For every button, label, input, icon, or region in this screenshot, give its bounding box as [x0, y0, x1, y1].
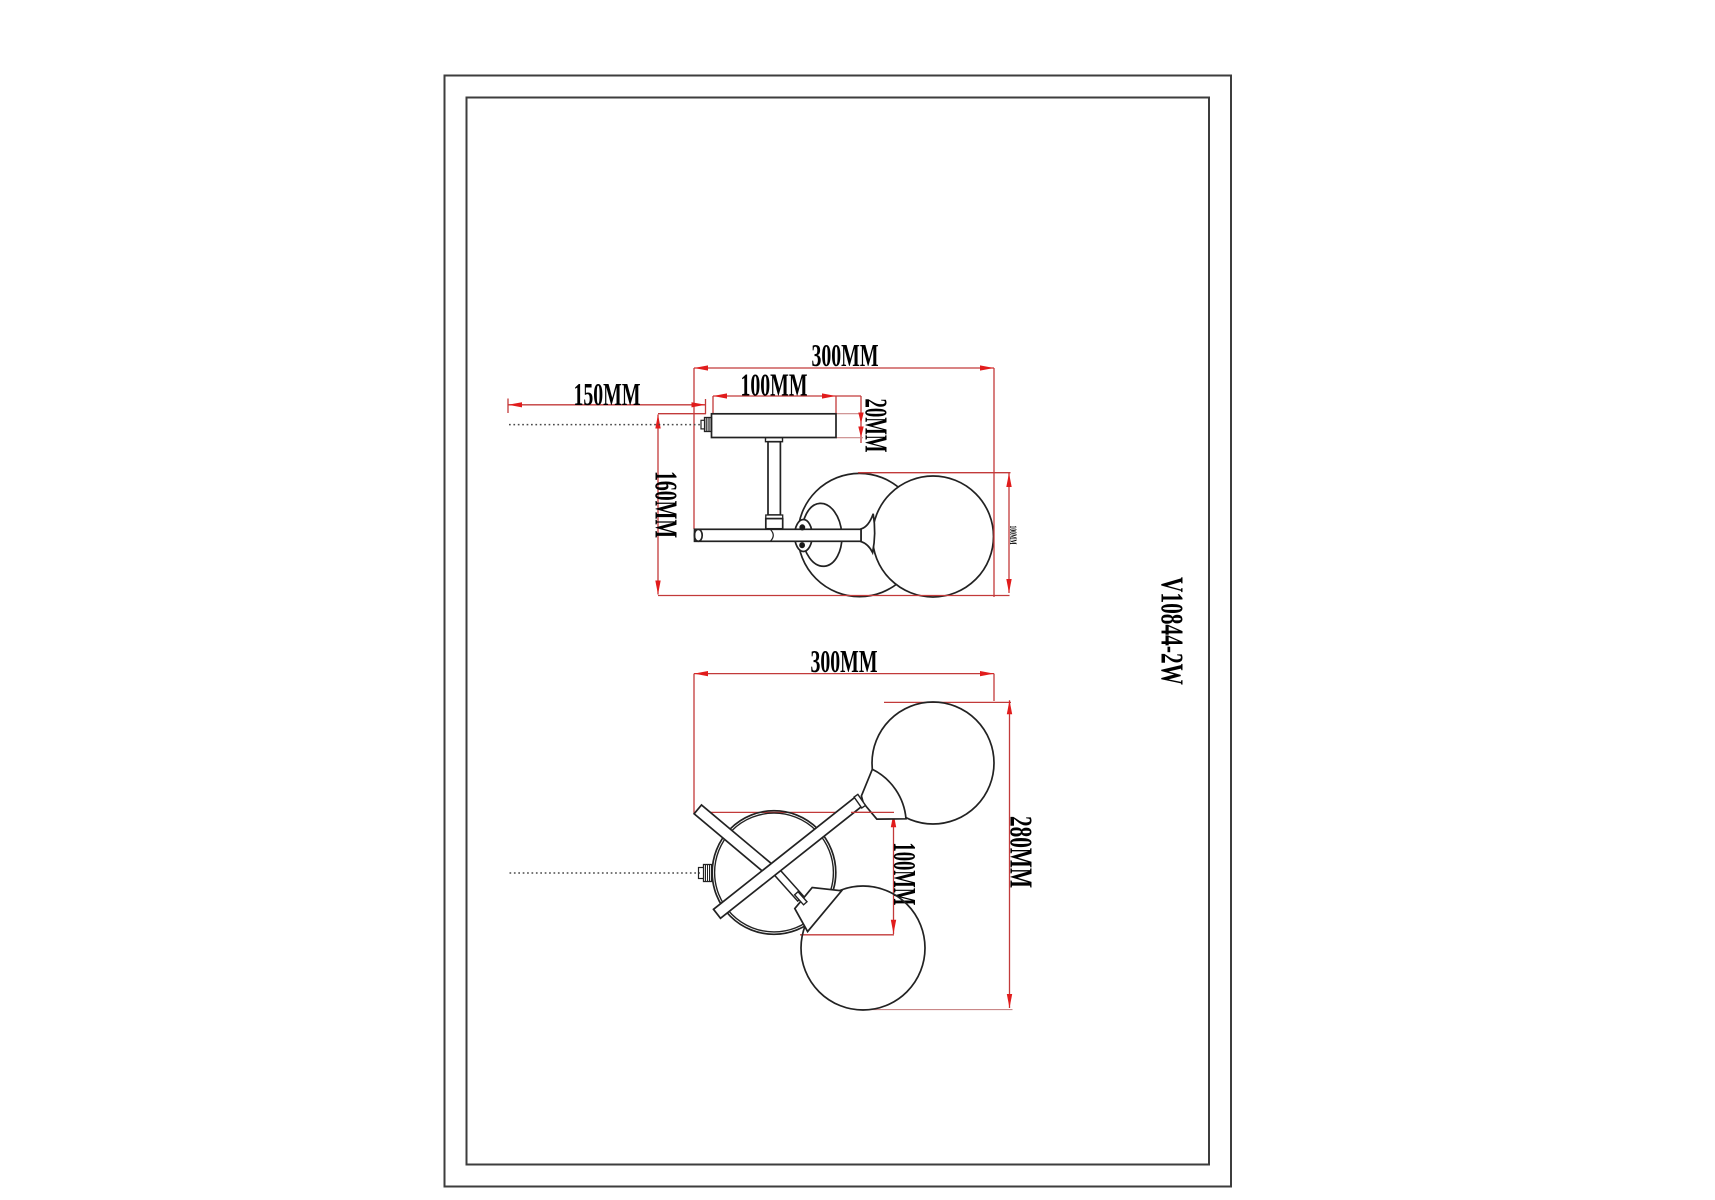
- svg-text:160MM: 160MM: [649, 471, 685, 538]
- svg-text:300MM: 300MM: [812, 337, 879, 373]
- svg-text:20MM: 20MM: [859, 399, 895, 453]
- svg-text:100MM: 100MM: [887, 842, 923, 905]
- svg-text:100MM: 100MM: [1007, 526, 1017, 545]
- svg-text:100MM: 100MM: [741, 367, 808, 403]
- svg-text:V10844-2W: V10844-2W: [1155, 577, 1191, 685]
- svg-text:280MM: 280MM: [1003, 816, 1039, 888]
- svg-text:150MM: 150MM: [574, 376, 641, 412]
- svg-text:300MM: 300MM: [811, 643, 878, 679]
